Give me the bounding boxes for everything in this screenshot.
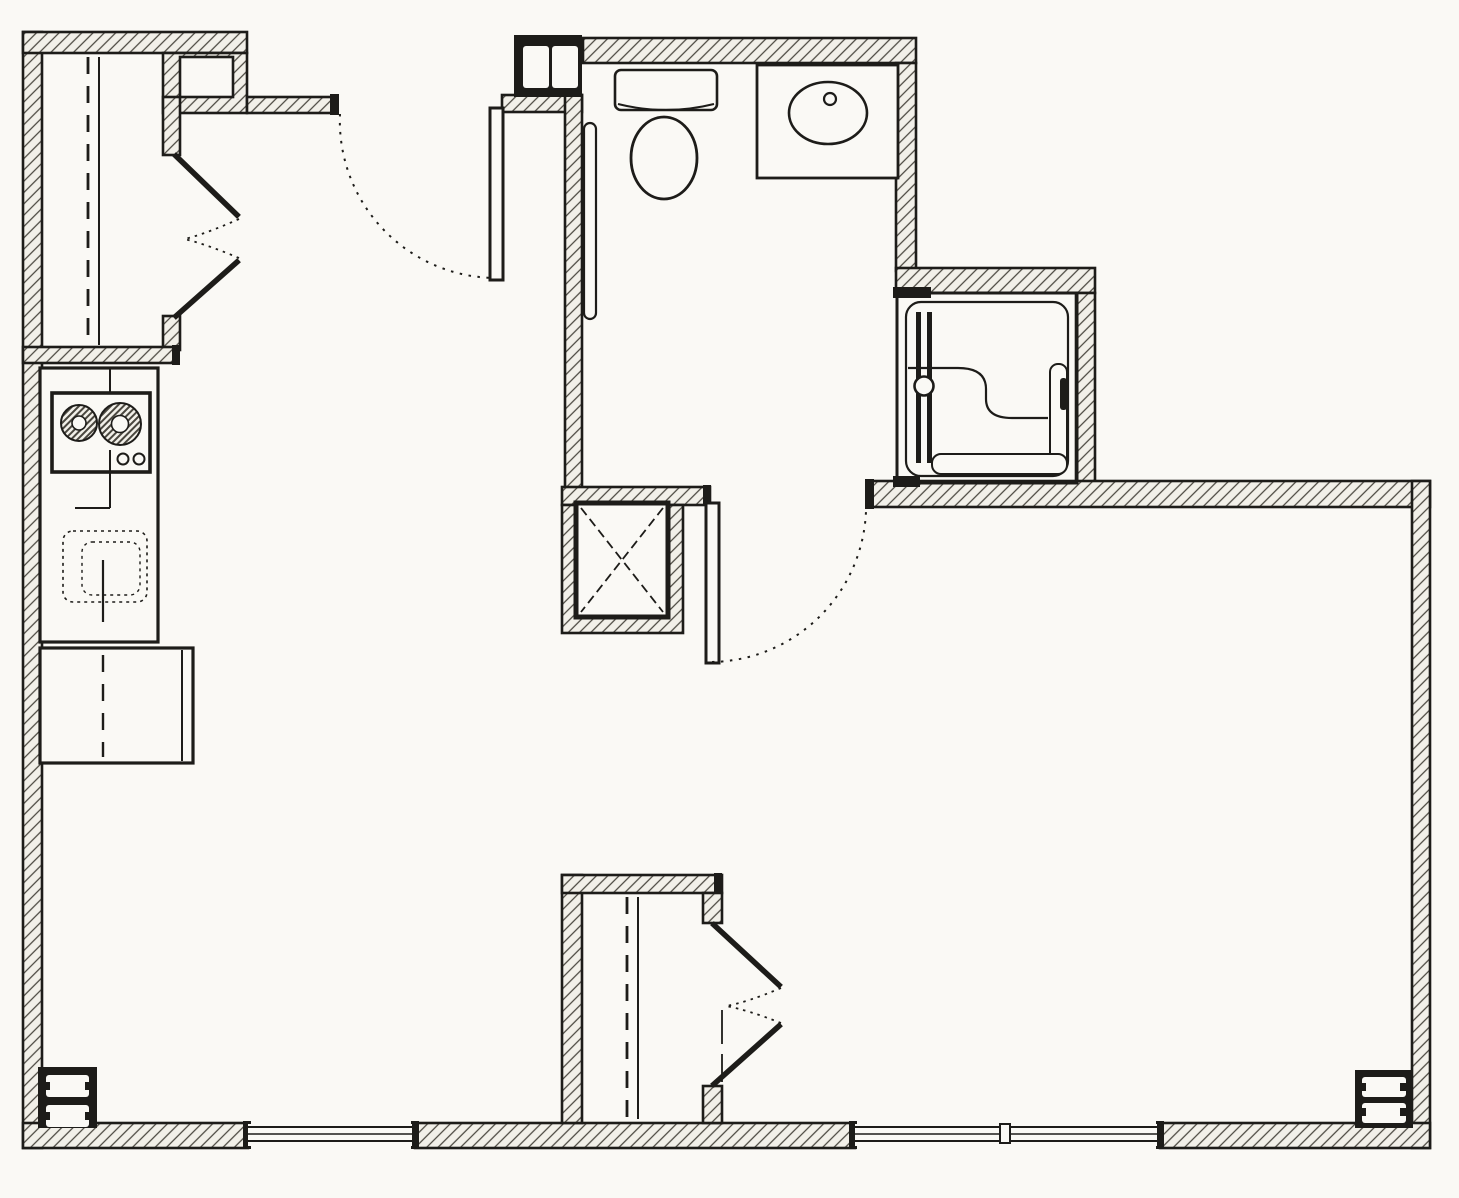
shower-door-knob — [915, 377, 934, 396]
south-window-right — [853, 1124, 1159, 1146]
toilet-tank — [615, 70, 717, 110]
wall-south-b — [415, 1123, 855, 1148]
column-web-notch — [1360, 1108, 1366, 1116]
wall-closet2-jamb-upper — [703, 893, 722, 923]
floor-plan-drawing — [0, 0, 1459, 1198]
wall-closet2-jamb-lower — [703, 1086, 722, 1123]
wall-closet1-jamb-lower — [163, 316, 180, 350]
wall-bathroom-north — [583, 38, 916, 63]
column-web-notch — [1360, 1083, 1366, 1091]
column-web-notch — [85, 1112, 91, 1120]
wall-living-north — [868, 481, 1430, 507]
walls — [23, 32, 1430, 1149]
grab-bar — [584, 123, 596, 319]
toilet-bowl — [631, 117, 697, 199]
wall-cap-entry-strip — [330, 94, 339, 115]
column-flange — [1362, 1103, 1406, 1123]
shower-jamb-top — [893, 287, 931, 298]
closet-door-leaf-lower — [176, 262, 237, 316]
duct-chase — [576, 503, 668, 617]
column-flange — [46, 1075, 89, 1097]
closet-door-leaf-upper — [714, 925, 779, 985]
columns — [38, 35, 1413, 1128]
entry-column — [514, 35, 582, 97]
shower-jamb-bottom — [893, 476, 920, 487]
cooktop-knob — [134, 454, 145, 465]
closet-door-swing-arc — [184, 239, 239, 258]
wall-closet2-top — [562, 875, 722, 893]
cooktop-knob — [118, 454, 129, 465]
wall-cap-closet1-bottom — [172, 345, 180, 365]
closet-door-swing-arc — [726, 1006, 781, 1023]
kitchen — [40, 368, 193, 763]
column-flange — [523, 46, 549, 88]
column-flange — [552, 46, 578, 88]
wall-closet1-bottom — [23, 347, 178, 363]
shower — [893, 287, 1077, 487]
column-web-notch — [1400, 1083, 1406, 1091]
entry-door-leaf — [490, 108, 503, 280]
southeast-column — [1355, 1070, 1413, 1128]
wall-east — [1412, 481, 1430, 1148]
bathroom-door-leaf — [706, 503, 719, 663]
vanity-sink — [789, 82, 867, 144]
refrigerator — [40, 648, 193, 763]
column-flange — [1362, 1077, 1406, 1097]
entry-door — [340, 108, 503, 280]
wall-bathroom-west — [565, 95, 582, 507]
wall-cap-closet2-top — [714, 873, 722, 894]
wall-cap-window1-right — [411, 1121, 419, 1149]
wall-entry-north-strip — [247, 97, 335, 113]
column-web-notch — [1400, 1108, 1406, 1116]
wall-cap-window2-right — [1156, 1121, 1164, 1149]
column-web-notch — [85, 1082, 91, 1090]
shower-bench-bottom — [932, 454, 1067, 474]
floor-plan-canvas — [0, 0, 1459, 1198]
closet-door-leaf-lower — [714, 1026, 779, 1084]
bathroom-door-swing-arc — [712, 499, 866, 662]
column-web-notch — [44, 1082, 50, 1090]
cooktop-burner-right-center — [112, 416, 129, 433]
column-web-notch — [44, 1112, 50, 1120]
wall-closet1-jamb-upper — [163, 97, 180, 155]
closet-door-leaf-upper — [176, 156, 237, 215]
closet-door-swing-arc — [726, 988, 781, 1006]
shower-door-handle — [1060, 378, 1067, 410]
wall-closet2-west — [562, 875, 582, 1123]
closet1-wall-niche — [180, 57, 233, 97]
southwest-column — [38, 1067, 97, 1128]
window-mullion — [1000, 1124, 1010, 1143]
closet-door-swing-arc — [184, 219, 239, 239]
cooktop-burner-left-center — [72, 416, 86, 430]
entry-door-swing-arc — [340, 114, 495, 278]
south-window-left — [246, 1124, 414, 1146]
column-flange — [46, 1105, 89, 1127]
vanity-faucet — [824, 93, 836, 105]
wall-closet1-top — [23, 32, 247, 53]
wall-shower-east — [1076, 293, 1095, 484]
